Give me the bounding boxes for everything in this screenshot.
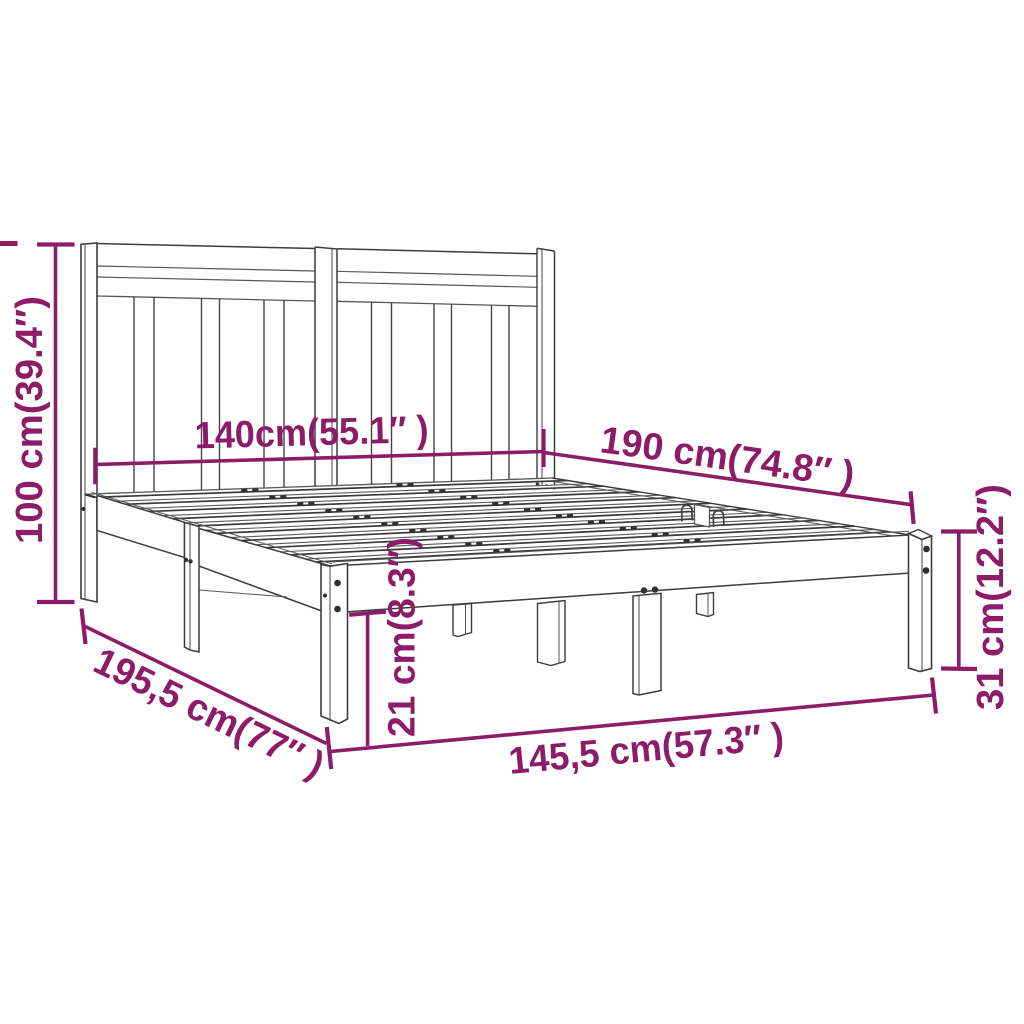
svg-text:140cm(55.1″ ): 140cm(55.1″ ) [194, 409, 429, 458]
svg-text:21 cm(8.3″): 21 cm(8.3″) [382, 537, 424, 737]
svg-text:31 cm(12.2″): 31 cm(12.2″) [970, 484, 1012, 710]
svg-text:100 cm(39.4″): 100 cm(39.4″) [9, 296, 51, 544]
